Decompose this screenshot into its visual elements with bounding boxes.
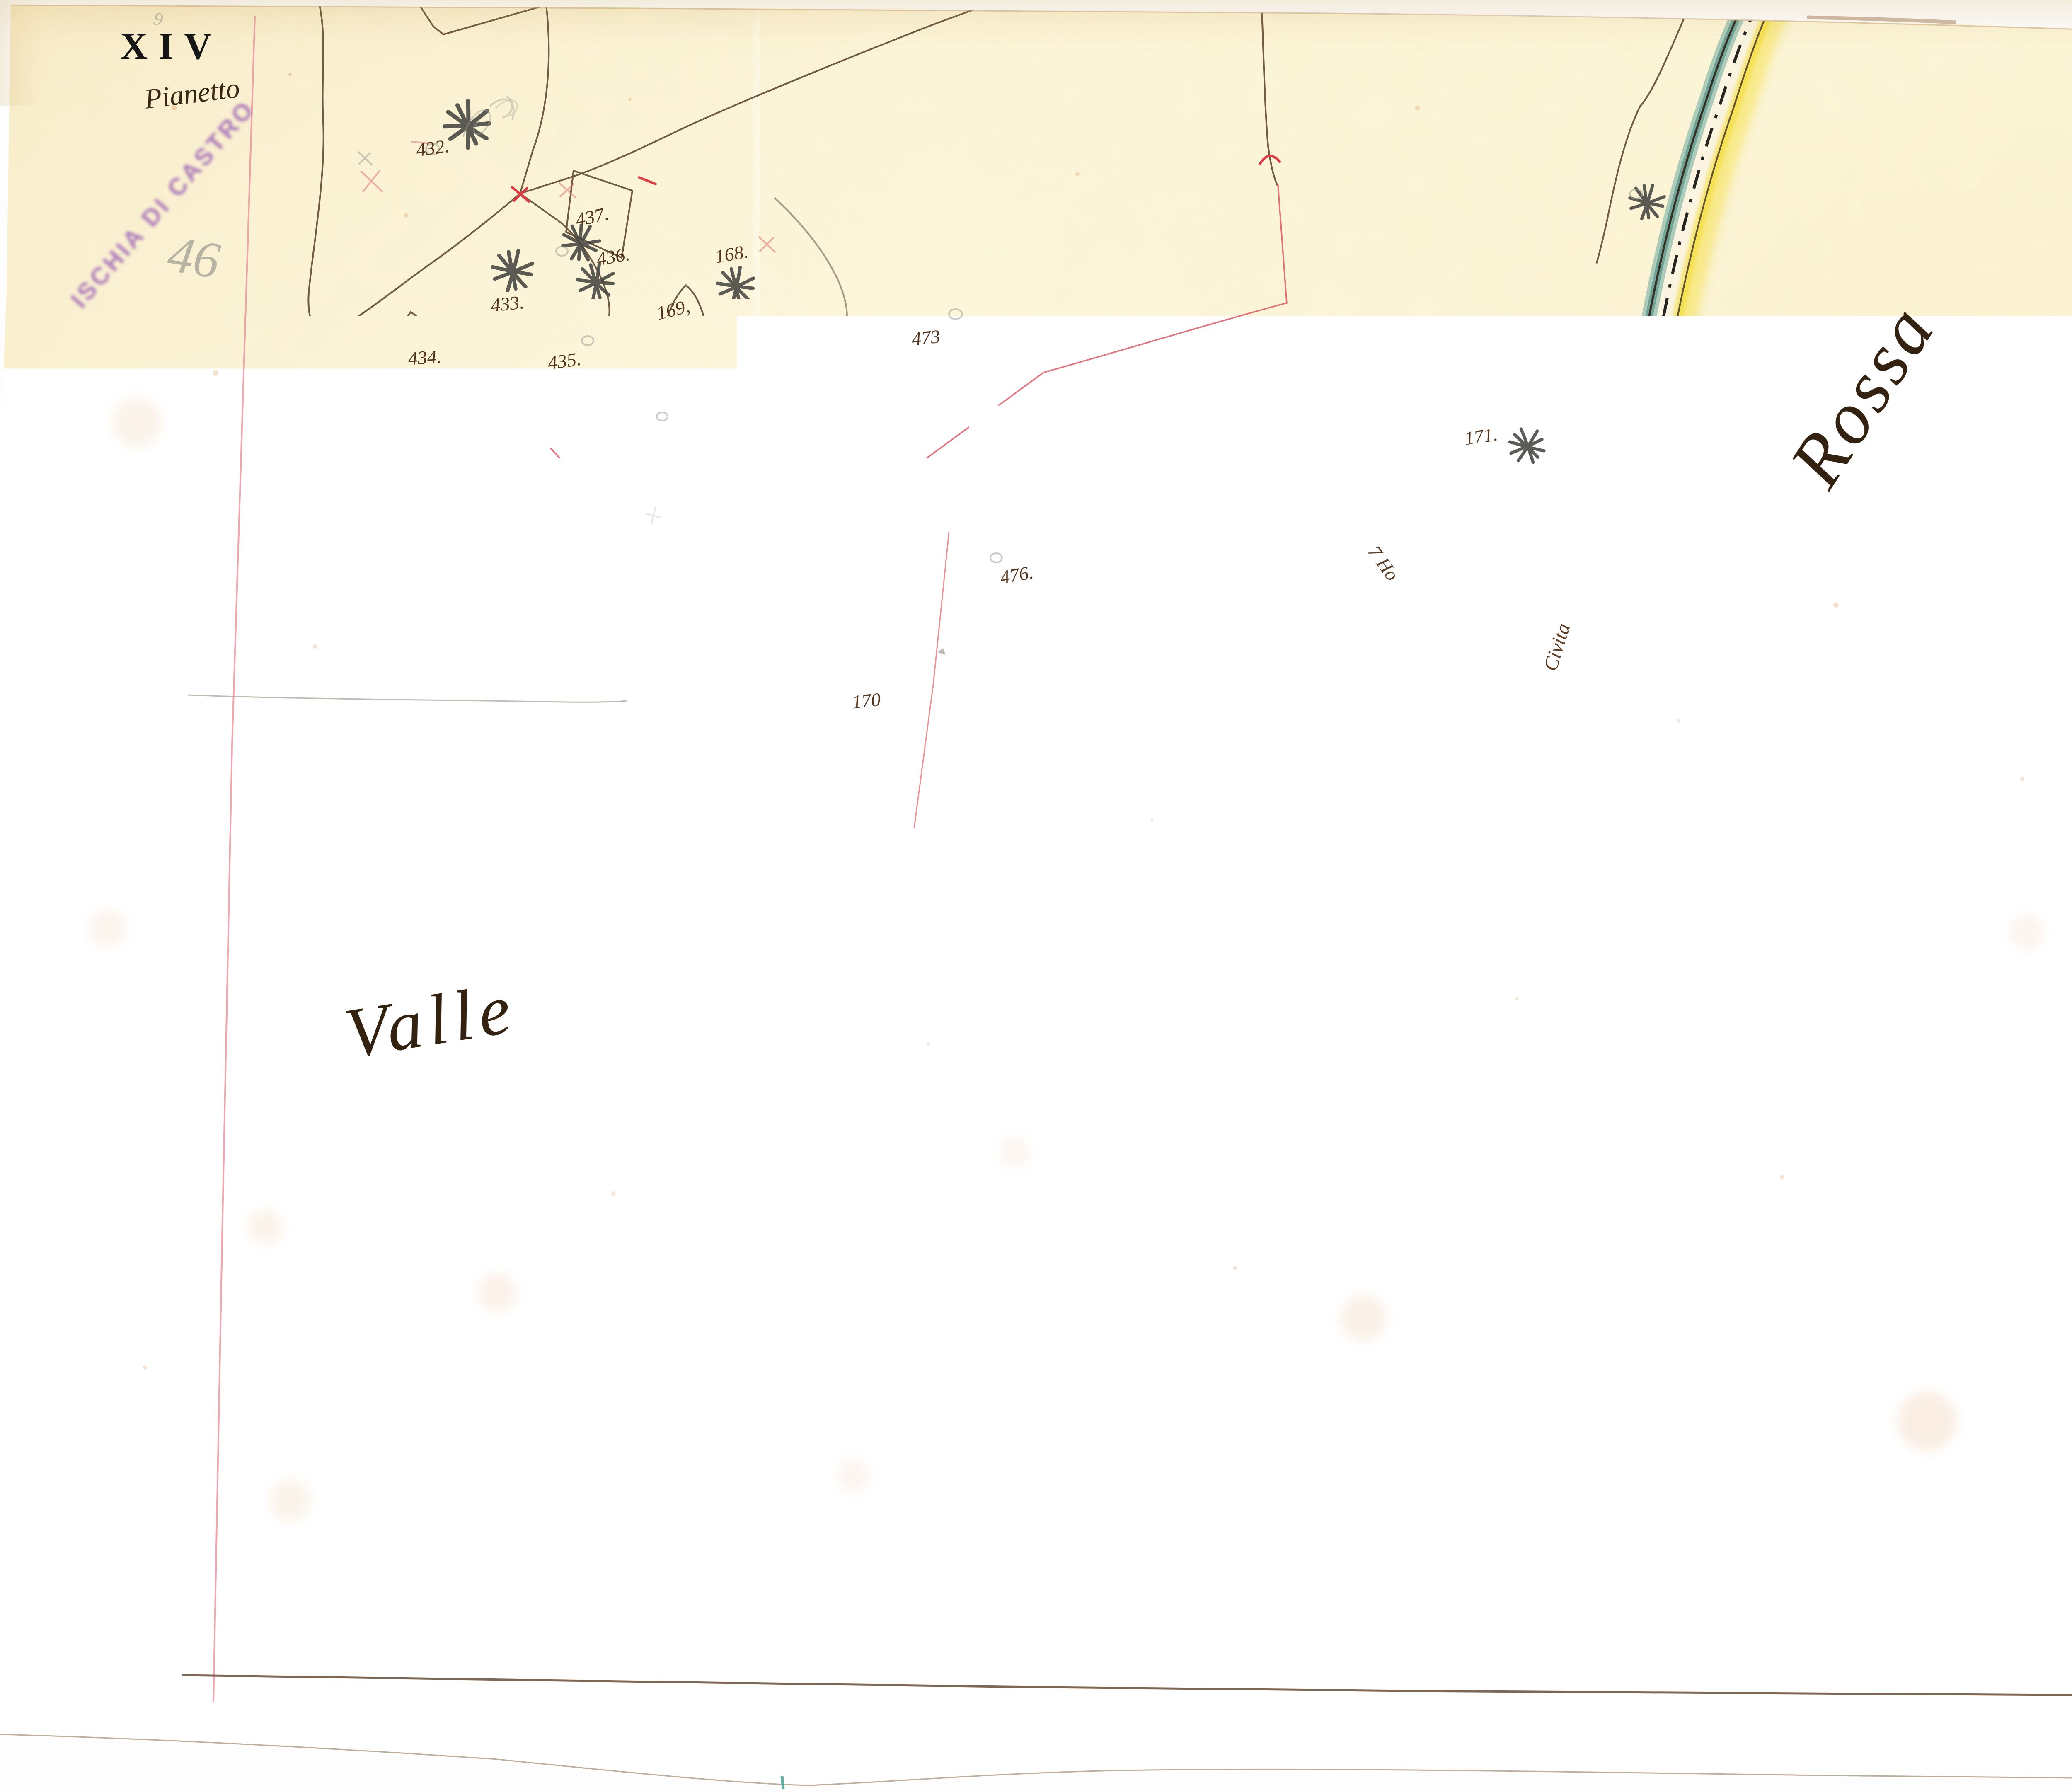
parcel-label-434: 434.: [407, 346, 442, 369]
sheet-number: XIV: [120, 25, 223, 67]
parcel-label-473: 473: [910, 326, 941, 350]
parcel-label-170: 170: [851, 689, 881, 713]
calibration-tick-teal: [782, 1776, 783, 1789]
map-sheet: XIV Pianetto ISCHIA DI CASTRO 46 9 h Val…: [0, 0, 2072, 1792]
map-canvas: XIV Pianetto ISCHIA DI CASTRO 46 9 h Val…: [0, 0, 2072, 1792]
stamp-blue-text: 17: [1234, 1566, 1259, 1591]
parcel-label-433: 433.: [490, 291, 525, 316]
scan-stripe-artifact: [753, 0, 760, 1792]
pencil-note-large: 46: [164, 225, 224, 289]
